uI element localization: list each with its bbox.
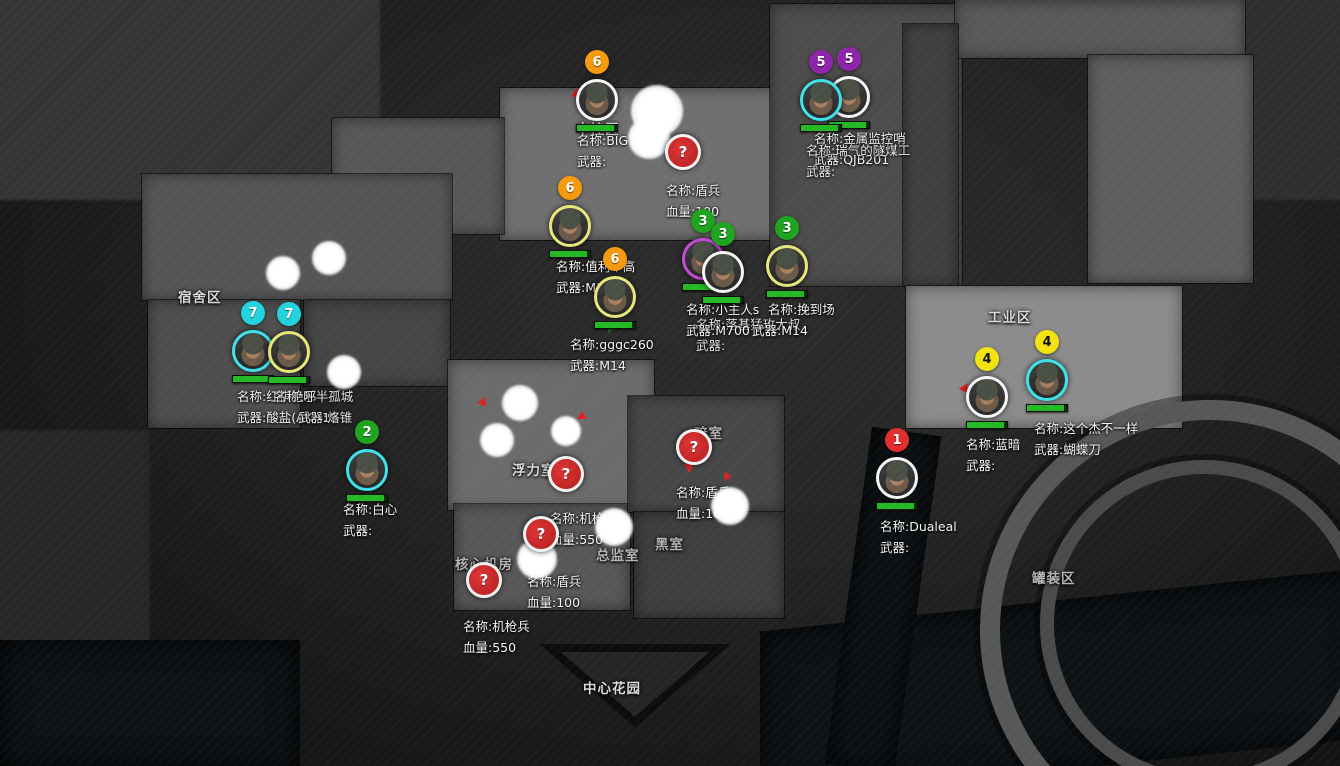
player-name: 名称:这个杰不一样 <box>1034 418 1138 439</box>
player-name: 名称:Dualeal <box>880 516 957 537</box>
player-label: 名称:瑞气的隧煤工 武器: <box>806 140 910 182</box>
smoke-puff <box>266 256 300 290</box>
threat-direction-marker <box>684 464 694 473</box>
threat-direction-marker <box>725 472 732 482</box>
player-marker[interactable]: 2 <box>345 420 389 502</box>
player-label: 名称:这个杰不一样 武器:蝴蝶刀 <box>1034 418 1138 460</box>
player-marker[interactable]: 4 <box>1025 330 1069 412</box>
enemy-marker[interactable]: ? <box>548 456 584 492</box>
health-bar <box>576 124 618 132</box>
player-avatar[interactable] <box>800 79 842 121</box>
player-weapon: 武器:蝴蝶刀 <box>1034 439 1138 460</box>
player-marker[interactable]: 4 <box>965 347 1009 429</box>
player-avatar[interactable] <box>549 205 591 247</box>
health-bar <box>800 124 842 132</box>
player-weapon: 武器: <box>880 537 957 558</box>
player-weapon: 武器: <box>343 520 397 541</box>
health-bar <box>268 376 310 384</box>
rock-field <box>0 0 380 200</box>
player-avatar[interactable] <box>594 276 636 318</box>
player-marker[interactable]: 6 <box>575 50 619 132</box>
player-marker[interactable]: 6 <box>548 176 592 258</box>
player-marker[interactable]: 1 <box>875 428 919 510</box>
player-label: 名称:蓝暗 武器: <box>966 434 1020 476</box>
area-label: 黑室 <box>655 533 684 553</box>
player-avatar[interactable] <box>346 449 388 491</box>
enemy-marker[interactable]: ? <box>466 562 502 598</box>
smoke-puff <box>312 241 346 275</box>
squad-number-badge: 6 <box>585 50 609 74</box>
player-avatar[interactable] <box>702 251 744 293</box>
squad-number-badge: 7 <box>241 301 265 325</box>
area-label: 宿舍区 <box>178 286 222 306</box>
health-bar <box>876 502 918 510</box>
player-weapon: 武器: <box>806 161 910 182</box>
player-marker[interactable]: 7 <box>267 302 311 384</box>
player-avatar[interactable] <box>966 376 1008 418</box>
building <box>903 24 958 286</box>
health-bar <box>594 321 636 329</box>
area-label: 中心花园 <box>583 677 641 697</box>
enemy-marker[interactable]: ? <box>676 429 712 465</box>
smoke-puff <box>551 416 581 446</box>
squad-number-badge: 4 <box>975 347 999 371</box>
player-name: 名称:挽到场 <box>768 299 835 320</box>
player-marker[interactable]: 5 <box>799 50 843 132</box>
enemy-hp: 血量:550 <box>463 637 530 658</box>
game-map[interactable]: 中控区 宿舍区 工业区 浮力室 核心机房 总监室 暗室 黑室 中心花园 罐装区 … <box>0 0 1340 766</box>
player-name: 名称:gggc260 <box>570 334 654 355</box>
player-label: 名称:小主人s 武器:M700 <box>686 299 759 341</box>
player-label: 名称:白心 武器: <box>343 499 397 541</box>
enemy-marker[interactable]: ? <box>665 134 701 170</box>
player-name: 名称:瑞气的隧煤工 <box>806 140 910 161</box>
health-bar <box>766 290 808 298</box>
area-label: 工业区 <box>988 306 1032 326</box>
player-avatar[interactable] <box>1026 359 1068 401</box>
player-weapon: 武器: <box>577 151 628 172</box>
player-marker[interactable]: 6 <box>593 247 637 329</box>
health-bar <box>966 421 1008 429</box>
building <box>304 300 450 386</box>
player-avatar[interactable] <box>268 331 310 373</box>
player-weapon: 武器:M14 <box>570 355 654 376</box>
player-marker[interactable]: 3 <box>765 216 809 298</box>
squad-number-badge: 5 <box>809 50 833 74</box>
health-bar <box>702 296 744 304</box>
player-label: 名称:gggc260 武器:M14 <box>570 334 654 376</box>
water <box>0 640 300 766</box>
player-label: 名称:挽到场 武器:M14 <box>768 299 835 341</box>
player-label: 名称:呼半孤城 武器:烙锥 <box>274 386 353 428</box>
squad-number-badge: 3 <box>711 222 735 246</box>
enemy-name: 名称:盾兵 <box>666 180 720 201</box>
smoke-puff <box>502 385 538 421</box>
smoke-puff <box>628 117 670 159</box>
squad-number-badge: 4 <box>1035 330 1059 354</box>
player-weapon: 武器: <box>966 455 1020 476</box>
squad-number-badge: 7 <box>277 302 301 326</box>
player-name: 名称:BIG <box>577 130 628 151</box>
building <box>1088 55 1253 283</box>
squad-number-badge: 6 <box>558 176 582 200</box>
squad-number-badge: 2 <box>355 420 379 444</box>
squad-number-badge: 6 <box>603 247 627 271</box>
player-name: 名称:呼半孤城 <box>274 386 353 407</box>
smoke-puff <box>595 508 633 546</box>
health-bar <box>1026 404 1068 412</box>
player-label: 名称:Dualeal 武器: <box>880 516 957 558</box>
enemy-label: 名称:机枪兵 血量:550 <box>463 616 530 658</box>
player-marker[interactable]: 3 <box>701 222 745 304</box>
squad-number-badge: 1 <box>885 428 909 452</box>
player-avatar[interactable] <box>576 79 618 121</box>
player-weapon: 武器:M700 <box>686 320 759 341</box>
squad-number-badge: 3 <box>775 216 799 240</box>
health-bar <box>549 250 591 258</box>
enemy-name: 名称:机枪兵 <box>463 616 530 637</box>
smoke-puff <box>480 423 514 457</box>
enemy-marker[interactable]: ? <box>523 516 559 552</box>
player-name: 名称:白心 <box>343 499 397 520</box>
threat-direction-marker <box>577 411 587 419</box>
smoke-puff <box>327 355 361 389</box>
building <box>634 512 784 618</box>
smoke-puff <box>711 487 749 525</box>
player-avatar[interactable] <box>766 245 808 287</box>
player-label: 名称:BIG 武器: <box>577 130 628 172</box>
player-name: 名称:蓝暗 <box>966 434 1020 455</box>
player-avatar[interactable] <box>876 457 918 499</box>
area-label: 罐装区 <box>1032 567 1076 587</box>
enemy-hp: 血量:100 <box>527 592 581 613</box>
player-weapon: 武器:M14 <box>752 320 835 341</box>
building <box>955 0 1245 58</box>
health-bar <box>346 494 388 502</box>
